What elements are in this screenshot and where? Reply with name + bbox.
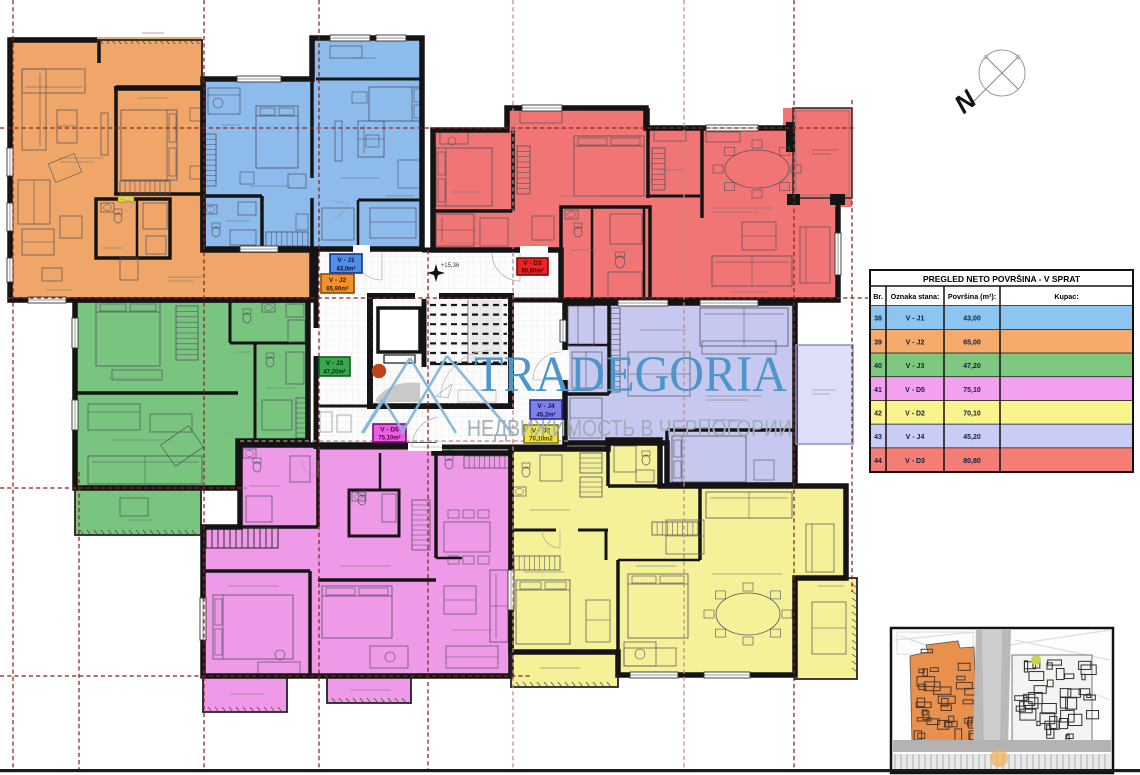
svg-text:Površina (m²):: Površina (m²): [948, 292, 996, 301]
svg-text:V - D2: V - D2 [905, 410, 925, 417]
svg-text:V - J1: V - J1 [337, 257, 355, 264]
svg-text:Kupac:: Kupac: [1054, 292, 1078, 301]
svg-text:80,80m²: 80,80m² [521, 267, 543, 274]
svg-text:V - J2: V - J2 [906, 339, 925, 346]
svg-text:65,00: 65,00 [963, 339, 981, 346]
svg-text:43,0m²: 43,0m² [336, 265, 355, 272]
svg-text:V - D3: V - D3 [905, 458, 925, 465]
svg-text:40: 40 [874, 363, 882, 370]
svg-text:V - J4: V - J4 [537, 403, 555, 410]
svg-text:TRADEGORIA: TRADEGORIA [474, 347, 787, 403]
svg-text:44: 44 [874, 458, 882, 465]
svg-text:75,10m²: 75,10m² [378, 434, 400, 441]
svg-text:V - J3: V - J3 [326, 360, 344, 367]
svg-text:Br.: Br. [873, 292, 883, 301]
svg-text:70,10: 70,10 [963, 410, 981, 417]
svg-text:V - J1: V - J1 [906, 316, 925, 323]
svg-text:43,00: 43,00 [963, 316, 981, 323]
svg-text:НЕДВИЖИМОСТЬ В ЧЕРНОГОРИИ: НЕДВИЖИМОСТЬ В ЧЕРНОГОРИИ [467, 415, 792, 441]
svg-text:43: 43 [874, 434, 882, 441]
svg-text:PREGLED NETO POVRŠINA - V SPRA: PREGLED NETO POVRŠINA - V SPRAT [923, 273, 1081, 284]
svg-text:47,20: 47,20 [963, 363, 981, 370]
svg-text:45,20: 45,20 [963, 434, 981, 441]
svg-text:V - D5: V - D5 [905, 387, 925, 394]
svg-text:V - J3: V - J3 [906, 363, 925, 370]
svg-text:42: 42 [874, 410, 882, 417]
svg-text:41: 41 [874, 387, 882, 394]
svg-text:65,90m²: 65,90m² [326, 285, 348, 292]
svg-text:V - J2: V - J2 [329, 277, 347, 284]
svg-text:75,10: 75,10 [963, 387, 981, 394]
svg-text:80,80: 80,80 [963, 458, 981, 465]
svg-text:38: 38 [874, 316, 882, 323]
svg-text:+15,36: +15,36 [441, 263, 460, 269]
svg-text:Oznaka stana:: Oznaka stana: [891, 292, 940, 301]
svg-text:39: 39 [874, 339, 882, 346]
svg-text:V - D3: V - D3 [523, 260, 542, 267]
svg-text:V - J4: V - J4 [906, 434, 925, 441]
svg-text:V - D5: V - D5 [380, 427, 399, 434]
svg-text:47,20m²: 47,20m² [323, 368, 345, 375]
